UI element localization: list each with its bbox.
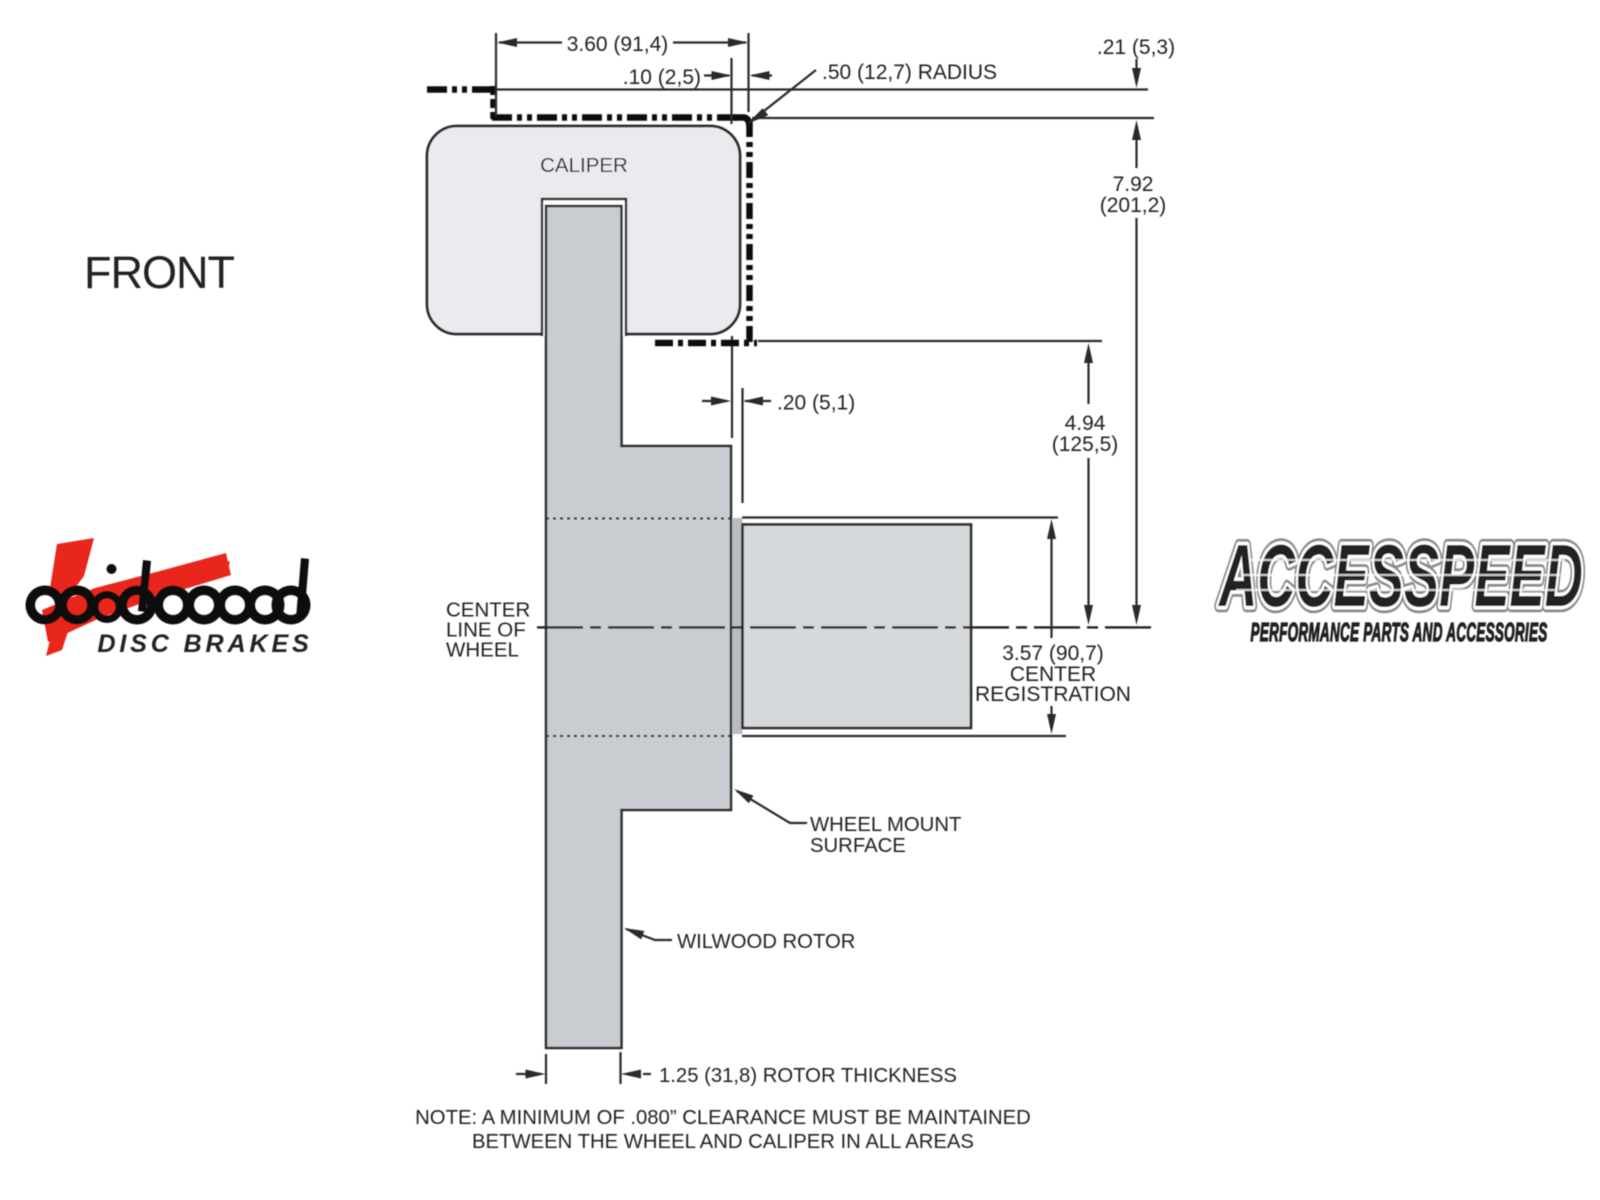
svg-text:WHEEL MOUNT: WHEEL MOUNT bbox=[810, 814, 961, 836]
svg-text:WHEEL: WHEEL bbox=[446, 639, 519, 662]
svg-text:DISC BRAKES: DISC BRAKES bbox=[97, 630, 312, 658]
svg-text:.20 (5,1): .20 (5,1) bbox=[777, 392, 855, 415]
svg-text:7.92: 7.92 bbox=[1113, 173, 1154, 196]
svg-text:.21 (5,3): .21 (5,3) bbox=[1097, 36, 1175, 59]
svg-text:WILWOOD ROTOR: WILWOOD ROTOR bbox=[677, 931, 855, 953]
svg-text:FRONT: FRONT bbox=[84, 247, 234, 298]
svg-text:ACCESSPEED: ACCESSPEED bbox=[1218, 527, 1583, 625]
svg-text:(201,2): (201,2) bbox=[1100, 194, 1167, 217]
svg-text:(125,5): (125,5) bbox=[1052, 433, 1119, 456]
svg-text:NOTE: A MINIMUM OF .080” CLEAR: NOTE: A MINIMUM OF .080” CLEARANCE MUST … bbox=[415, 1107, 1031, 1129]
svg-text:PERFORMANCE PARTS AND ACCESSOR: PERFORMANCE PARTS AND ACCESSORIES bbox=[1251, 618, 1548, 647]
svg-text:3.57 (90,7): 3.57 (90,7) bbox=[1002, 642, 1104, 665]
svg-text:REGISTRATION: REGISTRATION bbox=[975, 683, 1131, 706]
svg-text:BETWEEN THE WHEEL AND CALIPER: BETWEEN THE WHEEL AND CALIPER IN ALL ARE… bbox=[472, 1131, 974, 1153]
svg-text:4.94: 4.94 bbox=[1065, 412, 1106, 435]
svg-text:.10 (2,5): .10 (2,5) bbox=[623, 66, 701, 89]
svg-text:SURFACE: SURFACE bbox=[810, 835, 906, 857]
svg-text:CALIPER: CALIPER bbox=[540, 154, 628, 177]
svg-text:.50 (12,7) RADIUS: .50 (12,7) RADIUS bbox=[822, 61, 997, 84]
svg-text:3.60 (91,4): 3.60 (91,4) bbox=[567, 33, 669, 56]
svg-text:1.25 (31,8) ROTOR THICKNESS: 1.25 (31,8) ROTOR THICKNESS bbox=[659, 1065, 957, 1087]
